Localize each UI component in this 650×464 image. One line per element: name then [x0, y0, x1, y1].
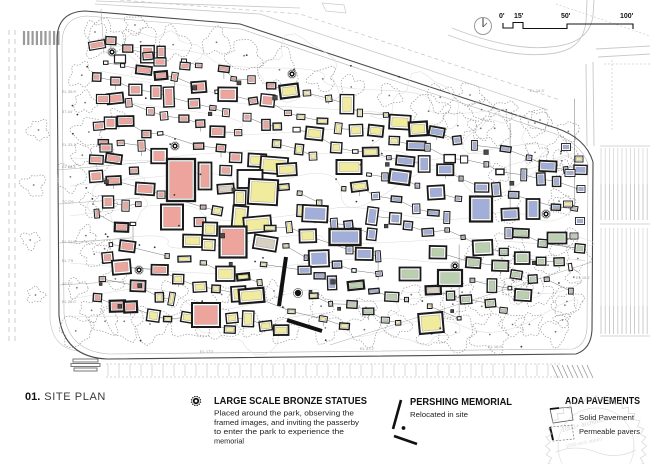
svg-text:framed images, and inviting th: framed images, and inviting the passerby: [214, 418, 359, 427]
svg-text:15': 15': [514, 13, 524, 20]
svg-text:EL 33.1': EL 33.1': [62, 142, 77, 147]
svg-text:50': 50': [561, 13, 571, 20]
svg-text:EL 16.9': EL 16.9': [488, 344, 503, 349]
svg-text:37.44': 37.44': [62, 109, 73, 114]
svg-text:to enter the park to experienc: to enter the park to experience the: [214, 427, 344, 436]
svg-text:EL 28.4': EL 28.4': [62, 164, 77, 169]
svg-text:100': 100': [620, 13, 634, 20]
svg-text:EL 17.2': EL 17.2': [360, 346, 375, 351]
svg-text:EL 31.9': EL 31.9': [62, 239, 77, 244]
svg-text:memorial: memorial: [214, 436, 244, 445]
svg-text:EL 26.0': EL 26.0': [62, 299, 77, 304]
svg-text:PERSHING MEMORIAL: PERSHING MEMORIAL: [410, 397, 512, 408]
svg-text:EL 14.3': EL 14.3': [530, 88, 545, 93]
svg-text:Placed around the park, observ: Placed around the park, observing the: [214, 409, 354, 418]
svg-text:LARGE SCALE BRONZE STATUES: LARGE SCALE BRONZE STATUES: [214, 396, 367, 407]
svg-text:01.SITE PLAN: 01.SITE PLAN: [25, 391, 106, 403]
svg-text:EL 17'2: EL 17'2: [200, 349, 214, 354]
svg-text:EL 15.1': EL 15.1': [576, 275, 591, 280]
svg-text:7C.0'9: 7C.0'9: [62, 199, 74, 204]
svg-text:EL 7'9: EL 7'9: [62, 258, 74, 263]
svg-text:Relocated in site: Relocated in site: [410, 410, 468, 419]
svg-text:EL 35.9': EL 35.9': [62, 89, 77, 94]
svg-text:42.7'7: 42.7'7: [62, 281, 74, 286]
svg-text:0': 0': [499, 13, 505, 20]
